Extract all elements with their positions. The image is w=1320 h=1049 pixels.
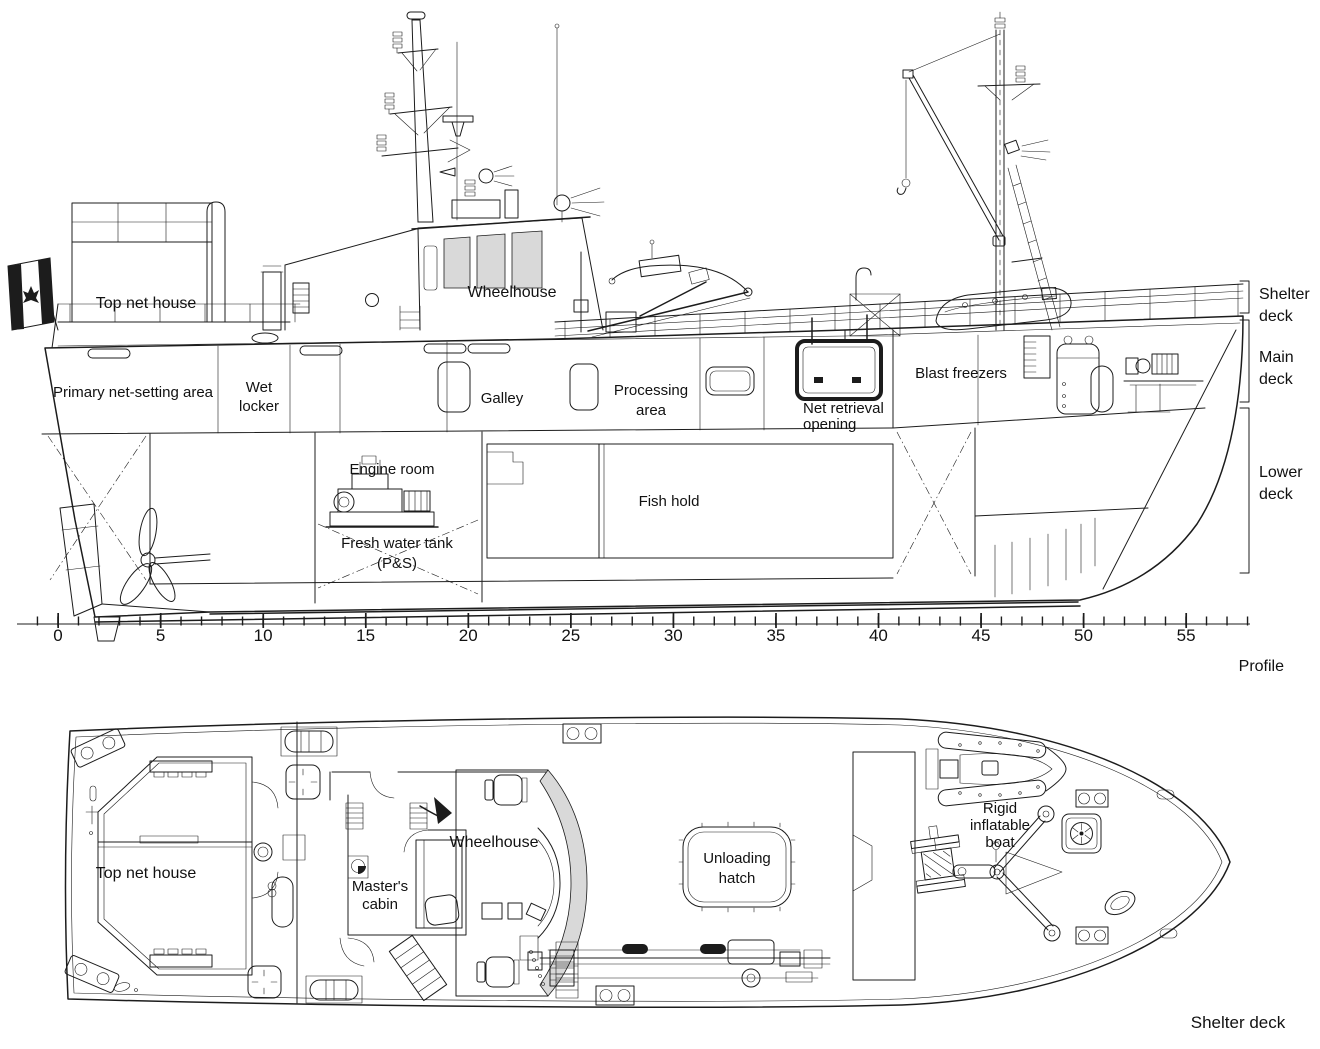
label-lower-deck-level: Lower — [1259, 464, 1303, 481]
unloading-hatch — [679, 822, 795, 912]
tick-45: 45 — [972, 626, 991, 645]
mooring-boxes — [563, 724, 1177, 1005]
label-net-retrieval-opening: Net retrieval — [803, 400, 884, 417]
label-fresh-water-tank: Fresh water tank — [341, 535, 453, 552]
helm-chair-bottom — [477, 957, 519, 987]
tick-35: 35 — [766, 626, 785, 645]
stern-fairleads — [64, 728, 137, 993]
scale-ruler: 0 5 10 15 20 25 30 35 40 45 50 55 Profil… — [17, 621, 1284, 676]
label-main-deck-level: Main — [1259, 349, 1294, 366]
label-processing-area-2: area — [636, 402, 667, 419]
deck-level-brackets: Shelter deck Main deck Lower deck — [1240, 281, 1310, 573]
label-rib-2: inflatable — [970, 817, 1030, 834]
hawse-oval — [1101, 887, 1139, 920]
roof-equipment — [440, 166, 604, 222]
propeller-icon — [115, 507, 210, 609]
label-masters-cabin-2: cabin — [362, 896, 398, 913]
label-fresh-water-tank-2: (P&S) — [377, 555, 417, 572]
hull-outline — [42, 316, 1243, 622]
label-top-net-house: Top net house — [96, 295, 197, 312]
rigid-inflatable-boat-plan — [926, 731, 1066, 806]
tick-40: 40 — [869, 626, 888, 645]
plan-area-labels: Top net house Master's cabin Wheelhouse … — [96, 800, 1286, 1032]
central-casing — [853, 752, 915, 980]
tick-25: 25 — [561, 626, 580, 645]
tick-30: 30 — [664, 626, 683, 645]
label-wheelhouse: Wheelhouse — [468, 284, 557, 301]
lower-deck-structure — [48, 428, 1148, 603]
deck-crane-profile — [574, 240, 752, 337]
tick-5: 5 — [156, 626, 165, 645]
main-mast — [377, 12, 559, 222]
label-plan-wheelhouse: Wheelhouse — [450, 834, 539, 851]
label-unloading-hatch: Unloading — [703, 850, 771, 867]
label-rib-3: boat — [985, 834, 1015, 851]
wheelhouse-plan — [456, 770, 587, 996]
fan-vent-box — [1062, 814, 1101, 853]
profile-view: Shelter deck Main deck Lower deck Top ne… — [8, 12, 1310, 675]
shelter-deck-railing — [555, 284, 1243, 339]
tick-0: 0 — [53, 626, 62, 645]
wheelhouse-profile — [412, 217, 603, 330]
helm-chair-top — [485, 775, 527, 805]
bow-machinery — [1024, 336, 1203, 414]
tick-55: 55 — [1177, 626, 1196, 645]
label-processing-area: Processing — [614, 382, 688, 399]
net-drum-winch — [909, 823, 965, 893]
label-rib: Rigid — [983, 800, 1017, 817]
label-masters-cabin: Master's — [352, 878, 408, 895]
label-unloading-hatch-2: hatch — [719, 870, 756, 887]
label-net-retrieval-opening-2: opening — [803, 416, 856, 433]
diagram-canvas: Shelter deck Main deck Lower deck Top ne… — [0, 0, 1320, 1049]
label-plan-top-net-house: Top net house — [96, 865, 197, 882]
plan-caption: Shelter deck — [1191, 1013, 1286, 1032]
tick-20: 20 — [459, 626, 478, 645]
foremast-derrick — [897, 12, 1060, 330]
canada-flag-icon — [8, 258, 58, 330]
label-primary-net-setting-area: Primary net-setting area — [53, 384, 214, 401]
label-galley: Galley — [481, 390, 524, 407]
deckhouse-profile — [261, 228, 420, 330]
label-wet-locker-2: locker — [239, 398, 279, 415]
plan-view: Top net house Master's cabin Wheelhouse … — [64, 717, 1286, 1032]
liferaft-cradles — [248, 727, 362, 1003]
tick-15: 15 — [356, 626, 375, 645]
label-wet-locker: Wet — [246, 379, 273, 396]
profile-caption: Profile — [1239, 658, 1284, 675]
label-engine-room: Engine room — [349, 461, 434, 478]
label-blast-freezers: Blast freezers — [915, 365, 1007, 382]
scale-tick-labels: 0 5 10 15 20 25 30 35 40 45 50 55 — [53, 626, 1195, 645]
label-fish-hold: Fish hold — [639, 493, 700, 510]
label-lower-deck-level-2: deck — [1259, 486, 1294, 503]
label-shelter-deck-level: Shelter — [1259, 286, 1310, 303]
tick-10: 10 — [254, 626, 273, 645]
net-retrieval-hatch — [797, 268, 900, 399]
label-shelter-deck-level-2: deck — [1259, 308, 1294, 325]
ship-arrangement-diagram: Shelter deck Main deck Lower deck Top ne… — [0, 0, 1320, 1049]
tick-50: 50 — [1074, 626, 1093, 645]
label-main-deck-level-2: deck — [1259, 371, 1294, 388]
